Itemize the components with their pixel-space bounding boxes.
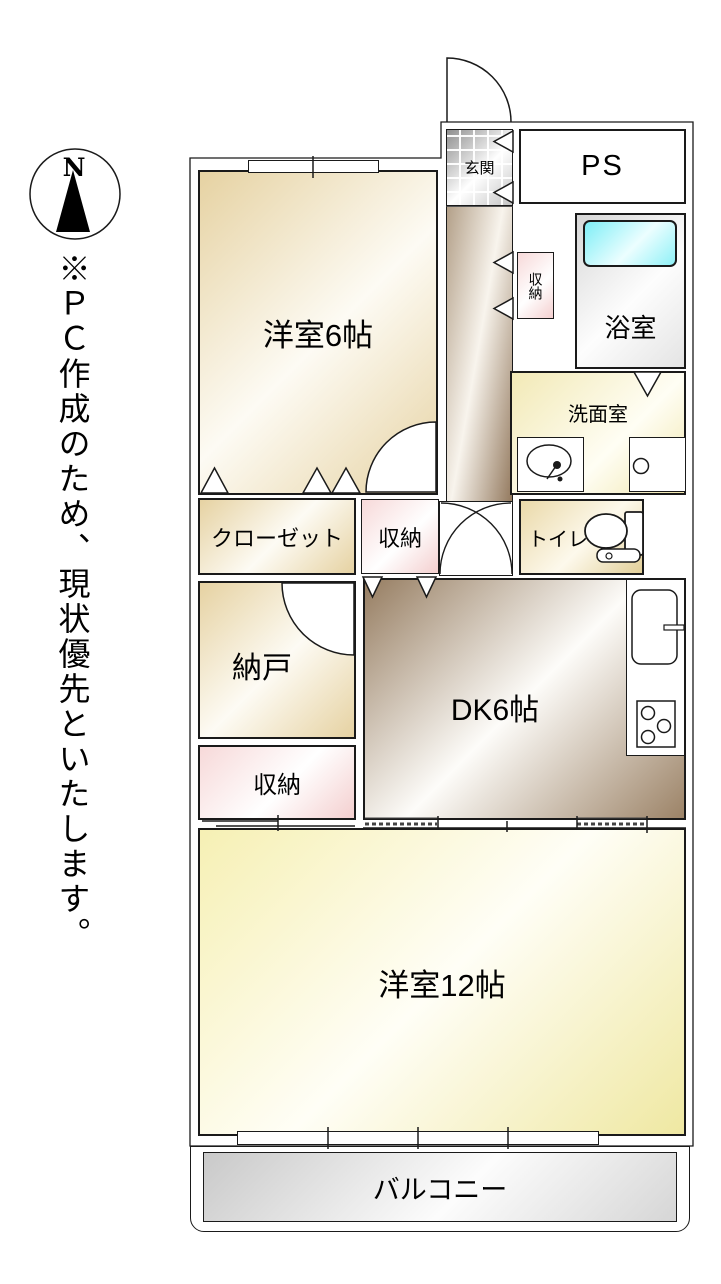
room-balcony-label: バルコニー <box>373 1168 507 1207</box>
room-western6-label: 洋室6帖 <box>263 310 373 355</box>
entrance-door-arc <box>447 58 511 122</box>
disclaimer-note: ※ＰＣ作成のため、現状優先といたします。 <box>55 252 90 952</box>
floorplan-page: 洋室6帖 玄関 PS 浴室 収納 洗面室 トイレ クローゼット 収納 納戸 DK… <box>0 0 721 1284</box>
room-toilet-label: トイレ <box>528 523 588 552</box>
room-ps: PS <box>519 129 686 204</box>
room-western12: 洋室12帖 <box>198 828 686 1136</box>
room-nando-label: 納戸 <box>232 643 292 687</box>
room-toilet: トイレ <box>519 499 644 575</box>
room-storage2-label: 収納 <box>378 521 422 553</box>
room-nando: 納戸 <box>198 581 356 739</box>
window-western6 <box>248 160 379 173</box>
room-balcony: バルコニー <box>203 1152 677 1222</box>
room-storage2: 収納 <box>361 499 439 574</box>
compass-icon: N <box>30 149 120 239</box>
vestibule <box>439 501 513 576</box>
vanity-sink-unit <box>517 437 584 492</box>
room-closet-label: クローゼット <box>211 521 343 553</box>
room-western6: 洋室6帖 <box>198 170 438 495</box>
room-entrance-label: 玄関 <box>464 157 494 178</box>
hall-storage-label: 収納 <box>526 272 546 300</box>
room-storage3: 収納 <box>198 745 356 820</box>
room-western12-label: 洋室12帖 <box>378 960 505 1005</box>
compass-north-label: N <box>63 153 86 182</box>
hall-storage: 収納 <box>517 252 554 319</box>
washer-pan <box>629 437 686 492</box>
room-closet: クローゼット <box>198 498 356 575</box>
bathtub <box>583 220 677 267</box>
room-ps-label: PS <box>581 150 624 183</box>
hallway <box>446 206 513 502</box>
room-bath-label: 浴室 <box>604 308 656 345</box>
room-storage3-label: 収納 <box>253 765 301 800</box>
kitchen-counter <box>626 580 684 756</box>
window-balcony <box>237 1131 599 1145</box>
room-dk-label: DK6帖 <box>365 685 625 729</box>
room-washroom-label: 洗面室 <box>568 398 628 427</box>
room-entrance: 玄関 <box>446 129 513 206</box>
